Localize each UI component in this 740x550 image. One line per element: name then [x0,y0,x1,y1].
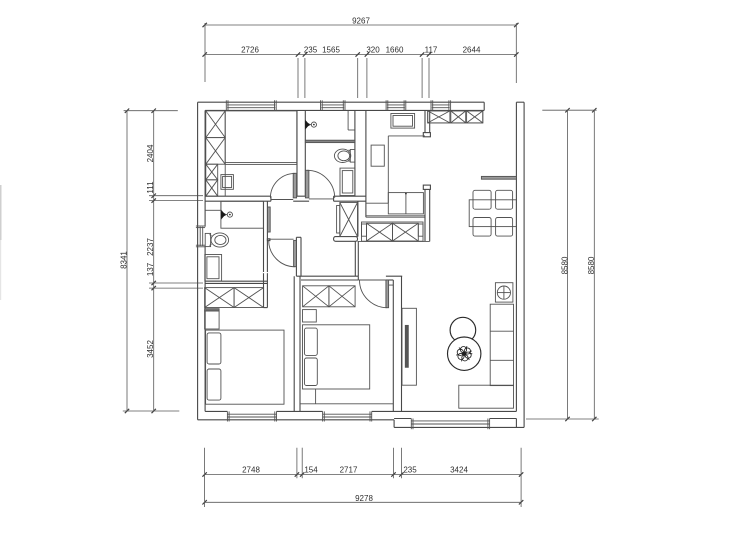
svg-text:320: 320 [366,46,380,55]
svg-text:2726: 2726 [241,46,259,55]
svg-text:1660: 1660 [386,46,404,55]
svg-text:235: 235 [403,465,417,474]
svg-text:3452: 3452 [146,340,155,358]
svg-text:111: 111 [146,181,155,194]
svg-text:2748: 2748 [242,465,260,474]
svg-text:8341: 8341 [120,251,129,269]
svg-text:1565: 1565 [322,46,340,55]
svg-text:9278: 9278 [355,494,373,503]
svg-text:3424: 3424 [450,465,468,474]
svg-text:117: 117 [425,46,438,55]
svg-text:2404: 2404 [146,144,155,162]
svg-text:8580: 8580 [560,256,569,274]
svg-text:8580: 8580 [587,256,596,274]
svg-text:2237: 2237 [146,238,155,256]
svg-text:137: 137 [146,262,155,276]
svg-text:154: 154 [304,465,318,474]
svg-text:9267: 9267 [352,17,370,26]
svg-text:2644: 2644 [463,46,481,55]
svg-text:2717: 2717 [340,465,358,474]
svg-text:235: 235 [304,46,318,55]
